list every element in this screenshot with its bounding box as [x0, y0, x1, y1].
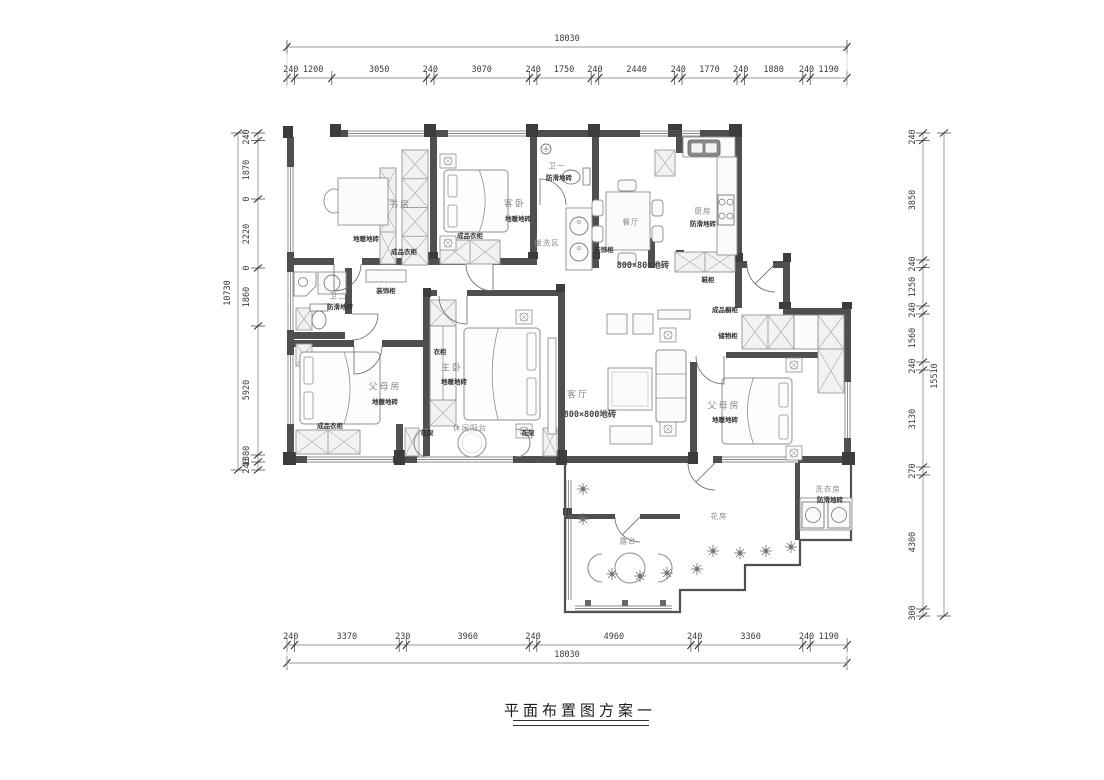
dim-label-top-2: 3050 — [369, 66, 389, 75]
dim-label-right-0: 240 — [909, 129, 918, 144]
room-label-parents-left: 父母房 — [368, 384, 401, 393]
dim-label-right-1: 3850 — [909, 190, 918, 210]
dim-label-top-total: 18030 — [554, 35, 580, 44]
room-label-living: 客厅 — [567, 392, 589, 401]
dim-label-right-8: 270 — [909, 463, 918, 478]
dim-label-top-0: 240 — [283, 66, 298, 75]
dim-label-left-8: 240 — [243, 458, 252, 473]
dim-label-right-10: 300 — [909, 605, 918, 620]
title-underline — [513, 720, 649, 726]
dim-label-bottom-1: 3370 — [337, 633, 357, 642]
dim-label-bottom-total: 18030 — [554, 651, 580, 660]
tile-label-living: 800×800地砖 — [564, 411, 617, 420]
dim-label-top-13: 240 — [799, 66, 814, 75]
dim-label-left-6: 5920 — [243, 380, 252, 400]
dim-label-top-3: 240 — [423, 66, 438, 75]
cabinet-label-parents-left-wardrobe: 成品衣柜 — [317, 423, 343, 430]
room-label-dining: 餐厅 — [623, 218, 640, 226]
dim-label-left-4: 0 — [243, 265, 252, 270]
cabinet-label-storage: 储物柜 — [718, 333, 738, 340]
finish-label-parents-left: 地暖地砖 — [372, 399, 398, 406]
room-label-laundry: 洗衣房 — [815, 485, 841, 493]
dim-label-left-1: 1870 — [243, 160, 252, 180]
room-label-kitchen: 厨房 — [695, 207, 712, 215]
cabinet-label-shoe: 鞋柜 — [702, 277, 715, 284]
room-label-study: 书房 — [389, 202, 411, 211]
dim-label-top-5: 240 — [525, 66, 540, 75]
finish-label-kitchen: 防滑地砖 — [690, 221, 716, 228]
dim-label-bottom-9: 1190 — [818, 633, 838, 642]
cabinet-label-guest-wardrobe: 成品衣柜 — [457, 233, 483, 240]
finish-label-master: 地暖地砖 — [441, 379, 467, 386]
dim-label-right-total: 15510 — [931, 363, 940, 389]
dim-label-left-2: 0 — [243, 196, 252, 201]
cabinet-label-deco-corridor: 装饰柜 — [376, 288, 396, 295]
finish-label-guest: 地暖地砖 — [505, 216, 531, 223]
dim-label-right-4: 240 — [909, 302, 918, 317]
dim-label-top-10: 1770 — [699, 66, 719, 75]
dim-label-right-6: 240 — [909, 358, 918, 373]
dim-label-bottom-5: 4960 — [604, 633, 624, 642]
dim-label-left-5: 1860 — [243, 287, 252, 307]
room-label-balcony: 休闲阳台 — [453, 424, 487, 432]
drawing-title: 平面布置图方案一 — [504, 704, 656, 719]
dim-label-top-6: 1750 — [554, 66, 574, 75]
cabinet-label-ready: 成品橱柜 — [712, 307, 738, 314]
dim-label-bottom-0: 240 — [283, 633, 298, 642]
dim-label-top-12: 1880 — [763, 66, 783, 75]
dim-label-right-5: 1560 — [909, 328, 918, 348]
dim-label-bottom-3: 3960 — [458, 633, 478, 642]
dim-label-right-3: 1250 — [909, 277, 918, 297]
dim-label-left-total: 10730 — [224, 280, 233, 306]
dim-label-top-1: 1200 — [303, 66, 323, 75]
finish-label-laundry: 防滑地砖 — [817, 497, 843, 504]
finish-label-study: 地暖地砖 — [353, 236, 379, 243]
dim-label-right-9: 4300 — [909, 532, 918, 552]
dim-label-bottom-6: 240 — [687, 633, 702, 642]
room-label-terrace: 露台 — [620, 537, 637, 545]
room-label-wash-area: 盥洗区 — [534, 239, 560, 247]
dim-label-bottom-7: 3360 — [740, 633, 760, 642]
room-label-bath1: 卫一 — [549, 162, 566, 170]
floorplan-stage: 书房 地暖地砖 成品衣柜 客卧 地暖地砖 成品衣柜 卫一 防滑地砖 盥洗区 装饰… — [0, 0, 1104, 780]
finish-label-parents-right: 地暖地砖 — [712, 417, 738, 424]
tile-label-dining: 800×800地砖 — [617, 262, 670, 271]
dim-label-top-11: 240 — [733, 66, 748, 75]
dim-label-left-0: 240 — [243, 129, 252, 144]
dim-label-top-9: 240 — [671, 66, 686, 75]
finish-label-bath1: 防滑地砖 — [546, 175, 572, 182]
stand-label-flower-left: 花架 — [421, 430, 434, 437]
room-label-bath2: 卫二 — [330, 292, 347, 300]
dim-label-bottom-2: 230 — [395, 633, 410, 642]
dim-label-top-14: 1190 — [818, 66, 838, 75]
label-layer: 书房 地暖地砖 成品衣柜 客卧 地暖地砖 成品衣柜 卫一 防滑地砖 盥洗区 装饰… — [0, 0, 1104, 780]
dim-label-top-4: 3070 — [471, 66, 491, 75]
finish-label-bath2: 防滑地砖 — [327, 304, 353, 311]
stand-label-flower-right: 花架 — [522, 430, 535, 437]
dim-label-top-7: 240 — [587, 66, 602, 75]
room-label-parents-right: 父母房 — [707, 403, 740, 412]
cabinet-label-deco-hall: 装饰柜 — [594, 247, 614, 254]
dim-label-right-2: 240 — [909, 256, 918, 271]
room-label-master: 主卧 — [441, 365, 463, 374]
room-label-flower-room: 花房 — [711, 512, 728, 520]
dim-label-left-3: 2220 — [243, 223, 252, 243]
dim-label-bottom-8: 240 — [799, 633, 814, 642]
dim-label-right-7: 3130 — [909, 408, 918, 428]
dim-label-top-8: 2440 — [626, 66, 646, 75]
cabinet-label-study-wardrobe: 成品衣柜 — [391, 249, 417, 256]
cabinet-label-master-closet: 衣柜 — [434, 349, 447, 356]
room-label-guest: 客卧 — [504, 201, 526, 210]
dim-label-bottom-4: 240 — [525, 633, 540, 642]
